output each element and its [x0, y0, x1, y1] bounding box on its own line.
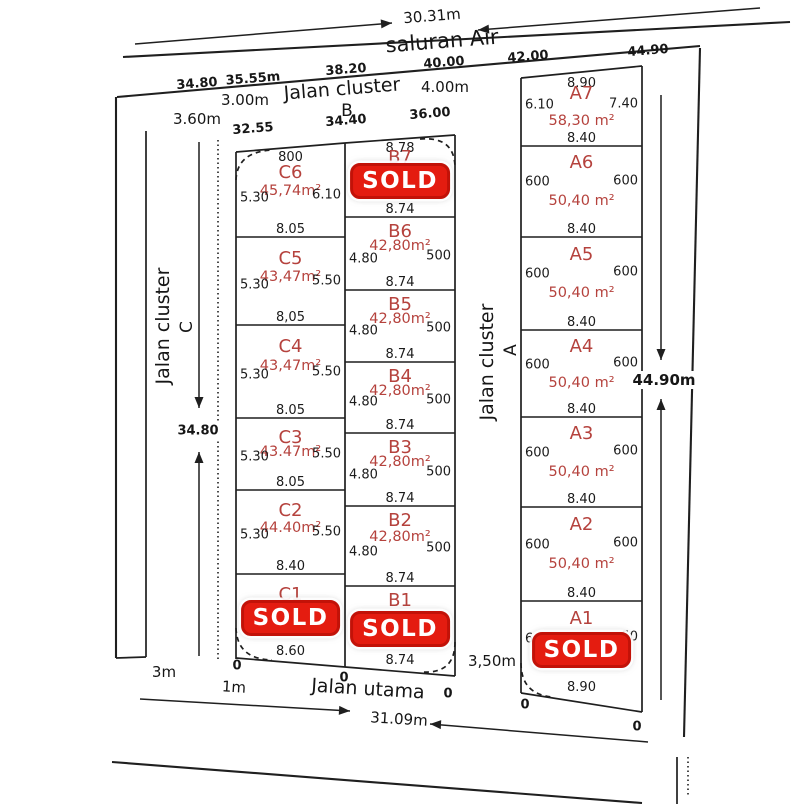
- plot-bottom-dim: 8.74: [386, 275, 415, 290]
- plot-bottom-dim: 8.40: [276, 559, 305, 574]
- plot-id-label: C2: [278, 500, 302, 521]
- sold-badge: SOLD: [350, 163, 450, 199]
- plot-left-dim: 5.30: [240, 277, 269, 292]
- plot-area-label: 42,80m²: [369, 454, 430, 470]
- plot-id-label: A3: [570, 423, 594, 444]
- plot-id-label: A1: [570, 608, 594, 629]
- plot-right-dim: 5.50: [312, 364, 341, 379]
- plot-right-dim: 500: [426, 464, 451, 479]
- plot-C5: C543,47m²5.305.508,05: [236, 237, 345, 325]
- plot-right-dim: 500: [426, 541, 451, 556]
- plot-area-label: 42,80m²: [369, 529, 430, 545]
- plot-id-label: A7: [570, 83, 594, 104]
- plot-id-label: C4: [278, 336, 302, 357]
- plot-bottom-dim: 8.74: [386, 571, 415, 586]
- plot-left-dim: 4.80: [349, 395, 378, 410]
- site-plan: 30.31m saluran Air 34.80 35.55m 38.20 40…: [0, 0, 804, 804]
- sold-badge: SOLD: [532, 632, 632, 668]
- plot-B7: 8.78B708.74SOLD: [345, 143, 455, 217]
- dim-34-80: 34.80: [176, 75, 218, 93]
- plot-left-dim: 5.30: [240, 449, 269, 464]
- plot-area-label: 42,80m²: [369, 238, 430, 254]
- corner-marker-0: 0: [443, 687, 452, 702]
- dim-32-55: 32.55: [232, 120, 274, 138]
- plot-right-dim: 5.50: [312, 274, 341, 289]
- plot-bottom-dim: 8.40: [567, 586, 596, 601]
- plot-left-dim: 4.80: [349, 467, 378, 482]
- plot-bottom-dim: 8.05: [276, 403, 305, 418]
- plot-id-label: C6: [278, 162, 302, 183]
- plot-id-label: A6: [570, 152, 594, 173]
- plot-area-label: 50,40 m²: [548, 375, 614, 391]
- plot-right-dim: 5.50: [312, 447, 341, 462]
- plot-id-label: A5: [570, 244, 594, 265]
- plot-left-dim: 600: [525, 175, 550, 190]
- plot-right-dim: 500: [426, 392, 451, 407]
- plot-right-dim: 6.10: [312, 187, 341, 202]
- plot-left-dim: 4.80: [349, 251, 378, 266]
- plot-right-dim: 600: [613, 444, 638, 459]
- plot-left-dim: 4.80: [349, 324, 378, 339]
- plot-B3: B342,80m²4.805008.74: [345, 433, 455, 506]
- plot-right-dim: 500: [426, 248, 451, 263]
- plot-C3: C343.47m²5.305.508.05: [236, 418, 345, 490]
- plot-C6: 800C645,74m²5.306.108.05: [236, 152, 345, 237]
- corner-marker-0: 0: [339, 671, 348, 686]
- plot-left-dim: 600: [525, 537, 550, 552]
- plot-B1: B108.74SOLD: [345, 586, 455, 668]
- plot-area-label: 58,30 m²: [548, 113, 614, 129]
- plot-bottom-dim: 8.90: [567, 680, 596, 695]
- plot-bottom-dim: 8.05: [276, 222, 305, 237]
- plot-A6: A650,40 m²6006008.40: [521, 146, 642, 237]
- plot-right-dim: 5.50: [312, 525, 341, 540]
- plot-left-dim: 5.30: [240, 190, 269, 205]
- plot-right-dim: 600: [613, 356, 638, 371]
- plot-bottom-dim: 8.74: [386, 653, 415, 668]
- plot-left-dim: 6.10: [525, 98, 554, 113]
- plot-B5: B542,80m²4.805008.74: [345, 290, 455, 362]
- plot-area-label: 50,40 m²: [548, 464, 614, 480]
- sold-badge: SOLD: [241, 600, 341, 636]
- road-width-3-00: 3.00m: [221, 91, 269, 109]
- plot-right-dim: 7.40: [609, 96, 638, 111]
- corner-marker-0: 0: [632, 720, 641, 735]
- plot-A7: 8.90A758,30 m²6.107.408.40: [521, 78, 642, 146]
- plot-A5: A550,40 m²6006008.40: [521, 237, 642, 330]
- road-letter-a: A: [501, 344, 521, 356]
- plot-left-dim: 5.30: [240, 368, 269, 383]
- plot-id-label: B1: [388, 590, 412, 611]
- plot-area-label: 50,40 m²: [548, 285, 614, 301]
- road-label-cluster-c: Jalan cluster: [152, 268, 174, 385]
- plot-bottom-dim: 8.74: [386, 347, 415, 362]
- dim-40-00: 40.00: [423, 54, 465, 72]
- road-label-cluster-a: Jalan cluster: [476, 304, 498, 421]
- plot-bottom-dim: 8.40: [567, 402, 596, 417]
- dim-36-00: 36.00: [409, 105, 451, 123]
- plot-area-label: 42,80m²: [369, 383, 430, 399]
- plot-C2: C244.40m²5.305.508.40: [236, 490, 345, 574]
- plot-left-dim: 600: [525, 357, 550, 372]
- plot-bottom-dim: 8.74: [386, 491, 415, 506]
- plot-A1: A16508.90SOLD: [521, 601, 642, 695]
- plot-area-label: 42,80m²: [369, 311, 430, 327]
- plot-right-dim: 600: [613, 265, 638, 280]
- dim-34-40: 34.40: [325, 112, 367, 130]
- plot-bottom-dim: 8.74: [386, 418, 415, 433]
- road-width-3-60: 3.60m: [173, 110, 221, 128]
- dim-left-34-80: 34.80: [175, 424, 220, 439]
- plot-bottom-dim: 8.74: [386, 202, 415, 217]
- plot-C1: C108.60SOLD: [236, 574, 345, 659]
- plot-left-dim: 600: [525, 446, 550, 461]
- plot-B6: B642,80m²4.805008.74: [345, 217, 455, 290]
- plot-left-dim: 4.80: [349, 544, 378, 559]
- plot-id-label: A2: [570, 514, 594, 535]
- plot-left-dim: 600: [525, 267, 550, 282]
- plot-id-label: A4: [570, 336, 594, 357]
- plot-B4: B442,80m²4.805008.74: [345, 362, 455, 433]
- plot-A2: A250,40 m²6006008.40: [521, 507, 642, 601]
- plot-A4: A450,40 m²6006008.40: [521, 330, 642, 417]
- plot-B2: B242,80m²4.805008.74: [345, 506, 455, 586]
- corner-marker-0: 0: [520, 698, 529, 713]
- plot-left-dim: 5.30: [240, 528, 269, 543]
- plot-right-dim: 600: [613, 535, 638, 550]
- plot-area-label: 50,40 m²: [548, 193, 614, 209]
- road-width-3-50: 3,50m: [468, 652, 516, 670]
- plot-bottom-dim: 8.05: [276, 475, 305, 490]
- plot-area-label: 50,40 m²: [548, 556, 614, 572]
- plot-bottom-dim: 8.60: [276, 644, 305, 659]
- plot-bottom-dim: 8,05: [276, 310, 305, 325]
- plot-id-label: B2: [388, 510, 412, 531]
- plot-bottom-dim: 8.40: [567, 315, 596, 330]
- plot-right-dim: 500: [426, 321, 451, 336]
- sold-badge: SOLD: [350, 611, 450, 647]
- road-letter-c: C: [177, 321, 197, 333]
- plot-bottom-dim: 8.40: [567, 222, 596, 237]
- plot-bottom-dim: 8.40: [567, 131, 596, 146]
- dim-44-90: 44.90: [627, 42, 669, 60]
- plot-A3: A350,40 m²6006008.40: [521, 417, 642, 507]
- plot-id-label: C5: [278, 248, 302, 269]
- road-width-1m: 1m: [221, 677, 246, 696]
- plot-bottom-dim: 8.40: [567, 492, 596, 507]
- corner-marker-0: 0: [232, 659, 241, 674]
- plot-C4: C443,47m²5.305.508.05: [236, 325, 345, 418]
- plot-right-dim: 600: [613, 173, 638, 188]
- dim-bottom-arrow: 31.09m: [370, 708, 429, 729]
- road-width-4-00: 4.00m: [421, 78, 469, 96]
- road-width-3m: 3m: [152, 663, 176, 681]
- dim-42-00: 42.00: [507, 48, 549, 66]
